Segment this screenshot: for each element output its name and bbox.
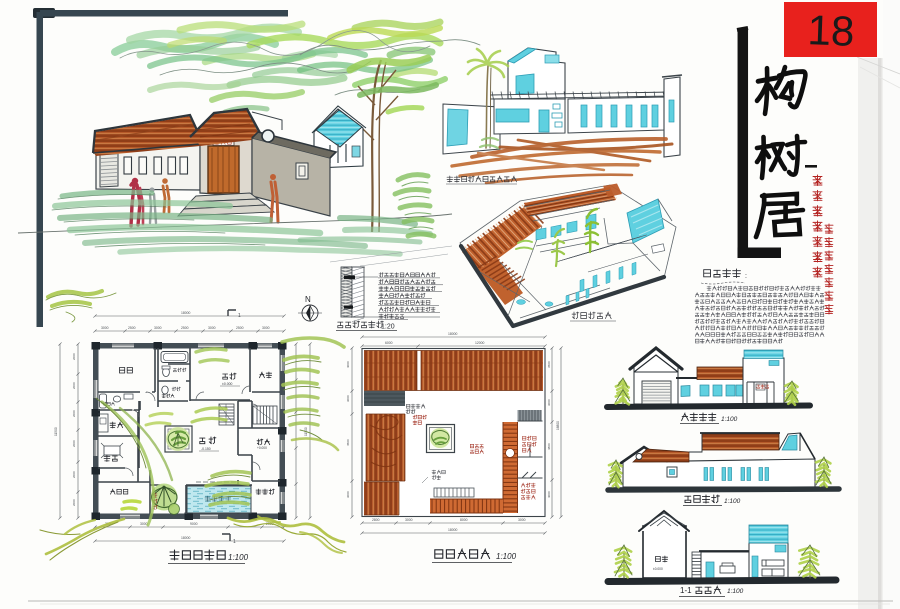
svg-text:8000: 8000 (460, 518, 468, 522)
svg-text:1-1: 1-1 (680, 586, 692, 595)
svg-text:3000: 3000 (154, 326, 162, 330)
svg-text:4800: 4800 (547, 443, 551, 450)
svg-text:2000: 2000 (72, 499, 76, 506)
svg-text:3000: 3000 (140, 522, 148, 526)
svg-text:1:100: 1:100 (721, 416, 738, 423)
svg-text:2500: 2500 (181, 326, 189, 330)
svg-text:-0.150: -0.150 (201, 447, 211, 451)
svg-text:+0.000: +0.000 (257, 446, 267, 450)
svg-text:4000: 4000 (547, 491, 551, 498)
svg-text:2000: 2000 (72, 410, 76, 417)
svg-text:11500: 11500 (54, 427, 58, 436)
svg-text:3000: 3000 (262, 326, 270, 330)
svg-text:2000: 2000 (72, 440, 76, 447)
svg-text:3000: 3000 (346, 395, 350, 402)
svg-text:18000: 18000 (448, 332, 458, 336)
svg-text:4000: 4000 (346, 361, 350, 368)
svg-text:18000: 18000 (448, 528, 458, 532)
svg-text:3000: 3000 (101, 326, 109, 330)
svg-text:18000: 18000 (181, 311, 191, 315)
svg-text:3000: 3000 (208, 326, 216, 330)
svg-text:1:100: 1:100 (496, 552, 517, 561)
svg-text:1: 1 (233, 539, 236, 545)
svg-text::: : (745, 273, 747, 280)
svg-text:±0.000: ±0.000 (222, 382, 232, 386)
svg-text:18000: 18000 (181, 536, 191, 540)
svg-text:1: 1 (238, 313, 241, 319)
svg-text:±0.000: ±0.000 (653, 567, 663, 571)
svg-text:2500: 2500 (128, 326, 136, 330)
svg-text:2800: 2800 (372, 518, 380, 522)
svg-text:1:20: 1:20 (381, 324, 395, 331)
svg-text:1:100: 1:100 (724, 498, 741, 505)
svg-text:1:100: 1:100 (727, 588, 744, 595)
svg-text:3500: 3500 (547, 361, 551, 368)
svg-text:16800: 16800 (556, 421, 560, 430)
svg-text:2000: 2000 (72, 471, 76, 478)
svg-text:12000: 12000 (475, 341, 485, 345)
svg-text:2000: 2000 (72, 382, 76, 389)
svg-text:N: N (305, 295, 311, 304)
svg-text:3000: 3000 (346, 491, 350, 498)
svg-text:2500: 2500 (236, 326, 244, 330)
svg-text:18: 18 (807, 6, 855, 55)
svg-text:9000: 9000 (190, 522, 198, 526)
svg-text:2000: 2000 (72, 353, 76, 360)
svg-text:1:100: 1:100 (228, 553, 249, 562)
svg-text:3000: 3000 (518, 518, 526, 522)
svg-text:6000: 6000 (385, 341, 393, 345)
svg-text:4500: 4500 (346, 439, 350, 446)
svg-text:3000: 3000 (547, 399, 551, 406)
svg-text:3000: 3000 (405, 518, 413, 522)
